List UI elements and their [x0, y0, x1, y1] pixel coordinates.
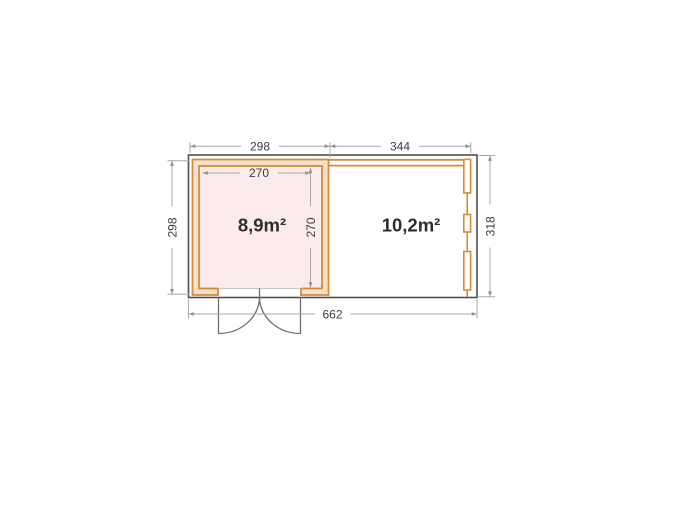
canopy-post-bottom — [464, 252, 471, 291]
canopy-post-middle — [464, 215, 471, 233]
dim-label-right-width: 344 — [390, 139, 410, 153]
dim-label-right-depth: 318 — [483, 216, 497, 236]
left-room-area-label: 8,9m² — [238, 215, 286, 236]
right-room-area-label: 10,2m² — [382, 215, 441, 236]
dim-label-left-depth: 298 — [165, 217, 179, 237]
dim-label-inner-width: 270 — [249, 166, 269, 180]
dim-label-inner-depth: 270 — [304, 217, 318, 237]
door-leaf-right — [260, 297, 301, 334]
floor-plan-canvas: 298 344 270 298 270 318 662 8,9m² 10,2m² — [0, 0, 700, 525]
floor-plan-drawing: 298 344 270 298 270 318 662 8,9m² 10,2m² — [0, 0, 700, 525]
canopy-post-top — [464, 159, 471, 193]
door-leaf-left — [219, 297, 260, 334]
dim-label-total-width: 662 — [322, 307, 342, 321]
dim-label-left-width: 298 — [250, 139, 270, 153]
